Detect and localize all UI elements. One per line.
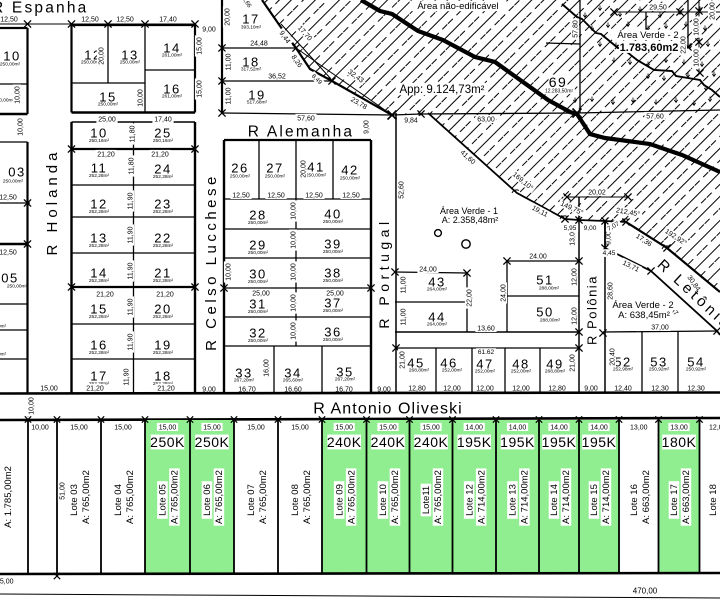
svg-text:10,00: 10,00: [31, 424, 49, 431]
svg-text:11,90: 11,90: [127, 226, 134, 243]
svg-text:250,00m²: 250,00m²: [323, 308, 344, 314]
svg-text:A: 714,00m2: A: 714,00m2: [520, 470, 531, 524]
svg-text:13,00: 13,00: [630, 424, 648, 431]
svg-text:10,00: 10,00: [225, 263, 232, 281]
svg-text:A: 765,00m2: A: 765,00m2: [170, 470, 181, 524]
svg-text:180K: 180K: [662, 434, 697, 450]
svg-text:252,28m²: 252,28m²: [89, 278, 110, 284]
svg-text:05: 05: [1, 270, 18, 285]
svg-text:42: 42: [341, 162, 358, 177]
svg-text:250,00m²: 250,00m²: [265, 174, 286, 180]
svg-text:Lote 15: Lote 15: [589, 484, 600, 516]
svg-text:393,10m²: 393,10m²: [241, 25, 262, 31]
svg-text:03: 03: [8, 164, 25, 179]
svg-text:195K: 195K: [500, 434, 535, 450]
svg-text:15,00: 15,00: [159, 424, 177, 431]
svg-text:R Espanha: R Espanha: [0, 0, 89, 16]
svg-text:57,80: 57,80: [572, 20, 579, 38]
svg-text:10,00: 10,00: [290, 263, 297, 281]
svg-text:250,00m²: 250,00m²: [248, 279, 269, 285]
svg-text:11,90: 11,90: [127, 298, 134, 315]
svg-text:20,00: 20,00: [224, 8, 231, 26]
svg-text:12,50: 12,50: [305, 192, 323, 199]
svg-text:20,00: 20,00: [709, 2, 716, 20]
svg-text:11,00: 11,00: [225, 87, 232, 104]
svg-text:14,00: 14,00: [465, 424, 483, 431]
svg-text:12,00: 12,00: [512, 385, 530, 392]
svg-text:252,28m²: 252,28m²: [153, 314, 174, 320]
svg-text:25,00: 25,00: [326, 290, 344, 297]
svg-text:9,00: 9,00: [584, 225, 597, 232]
svg-text:A: 765,00m2: A: 765,00m2: [302, 470, 313, 524]
svg-text:261,00m²: 261,00m²: [162, 53, 183, 59]
svg-text:Área não-edificável: Área não-edificável: [417, 1, 498, 12]
svg-text:37,00: 37,00: [651, 324, 669, 331]
svg-text:10,00: 10,00: [290, 231, 297, 249]
svg-text:69: 69: [549, 74, 568, 90]
svg-text:15,00: 15,00: [422, 424, 440, 431]
svg-text:4,45: 4,45: [603, 250, 616, 257]
svg-text:15,00: 15,00: [196, 80, 203, 98]
svg-text:250,92m²: 250,92m²: [649, 367, 670, 373]
svg-text:24,00: 24,00: [419, 266, 437, 273]
svg-text:21,00: 21,00: [569, 354, 576, 372]
svg-text:252,28m²: 252,28m²: [153, 174, 174, 180]
svg-text:0m²: 0m²: [0, 352, 7, 358]
svg-text:A: 765,00m2: A: 765,00m2: [214, 470, 225, 524]
svg-text:15,00: 15,00: [0, 578, 14, 585]
svg-text:13,60: 13,60: [477, 325, 495, 332]
svg-text:15,00: 15,00: [70, 424, 88, 431]
svg-text:21,20: 21,20: [96, 291, 114, 298]
svg-text:10: 10: [3, 48, 20, 63]
svg-text:250,16m²: 250,16m²: [153, 138, 174, 144]
svg-text:268,80m²: 268,80m²: [545, 369, 566, 375]
svg-text:267,20m²: 267,20m²: [234, 378, 255, 384]
svg-text:250,00m²: 250,00m²: [230, 174, 251, 180]
svg-text:A: 765,00m2: A: 765,00m2: [433, 470, 444, 524]
svg-text:15,00: 15,00: [196, 37, 203, 55]
svg-text:250,00m²: 250,00m²: [0, 62, 21, 68]
svg-text:A: 765,00m2: A: 765,00m2: [125, 470, 136, 524]
svg-text:25,00: 25,00: [252, 290, 270, 297]
svg-text:252,28m²: 252,28m²: [89, 209, 110, 215]
svg-text:A: 765,00m2: A: 765,00m2: [390, 470, 401, 524]
svg-text:20,40: 20,40: [609, 348, 616, 366]
svg-text:268,80m²: 268,80m²: [409, 368, 430, 374]
svg-text:Lote 18: Lote 18: [708, 484, 719, 516]
svg-text:24,48: 24,48: [250, 40, 268, 47]
svg-text:Lote 04: Lote 04: [113, 484, 124, 516]
svg-text:61.62: 61.62: [478, 349, 495, 356]
svg-text:15,00: 15,00: [335, 424, 353, 431]
svg-text:R Polônia: R Polônia: [584, 275, 599, 345]
svg-text:52,60: 52,60: [398, 181, 405, 199]
svg-text:12,00: 12,00: [443, 385, 461, 392]
svg-text:288,00m²: 288,00m²: [539, 286, 560, 292]
svg-text:250,00m²: 250,00m²: [248, 338, 269, 344]
svg-text:36,52: 36,52: [268, 73, 286, 80]
svg-text:0m²: 0m²: [0, 324, 7, 330]
svg-text:15,00: 15,00: [40, 385, 58, 392]
svg-text:11,00: 11,00: [400, 308, 407, 325]
svg-text:250,00m²: 250,00m²: [98, 102, 119, 108]
svg-text:14,00: 14,00: [550, 424, 568, 431]
svg-text:240K: 240K: [371, 434, 406, 450]
svg-text:252,28m²: 252,28m²: [153, 278, 174, 284]
svg-text:250,16m²: 250,16m²: [89, 138, 110, 144]
svg-text:250,00m²: 250,00m²: [7, 284, 28, 290]
svg-text:264,00m²: 264,00m²: [427, 322, 448, 328]
svg-text:195K: 195K: [582, 434, 617, 450]
svg-text:41: 41: [307, 159, 324, 174]
svg-text:252,00m²: 252,00m²: [511, 369, 532, 375]
svg-text:12,50: 12,50: [342, 192, 360, 199]
svg-text:1.783,60m2: 1.783,60m2: [620, 42, 679, 54]
svg-text:16,00: 16,00: [263, 359, 270, 377]
svg-text:252,28m²: 252,28m²: [153, 209, 174, 215]
svg-text:12.283,50m²: 12.283,50m²: [545, 89, 573, 95]
svg-text:R Antonio Oliveski: R Antonio Oliveski: [313, 400, 463, 417]
svg-text:11,90: 11,90: [123, 368, 130, 385]
svg-text:A: 714,00m2: A: 714,00m2: [476, 470, 487, 524]
svg-text:26: 26: [231, 160, 248, 175]
svg-text:20,02: 20,02: [588, 189, 606, 196]
svg-text:21,20: 21,20: [157, 385, 175, 392]
svg-text:252,28m²: 252,28m²: [89, 243, 110, 249]
svg-text:250,00m²: 250,00m²: [323, 249, 344, 255]
svg-text:10,00: 10,00: [693, 49, 700, 67]
svg-text:20,00: 20,00: [300, 160, 307, 178]
svg-text:20,00: 20,00: [98, 47, 105, 65]
svg-text:A: 2.358,48m²: A: 2.358,48m²: [442, 215, 499, 225]
svg-text:12,50: 12,50: [0, 194, 17, 201]
svg-text:9,00: 9,00: [202, 26, 216, 33]
svg-text:250,00m²: 250,00m²: [3, 179, 24, 185]
svg-text:252,28m²: 252,28m²: [89, 350, 110, 356]
svg-text:R Celso Lucchese: R Celso Lucchese: [203, 173, 220, 351]
svg-text:A: 1.785,00m2: A: 1.785,00m2: [3, 466, 14, 528]
svg-text:21,20: 21,20: [97, 151, 115, 158]
svg-text:252,00m²: 252,00m²: [442, 368, 463, 374]
svg-text:9,84: 9,84: [404, 117, 418, 124]
svg-text:11,90: 11,90: [127, 262, 134, 279]
svg-text:11,90: 11,90: [127, 192, 134, 209]
svg-text:11,80: 11,80: [129, 125, 136, 142]
svg-text:250,00m²: 250,00m²: [248, 309, 269, 315]
svg-text:12,50: 12,50: [81, 16, 99, 23]
svg-text:252,28m²: 252,28m²: [153, 350, 174, 356]
svg-text:11,80: 11,80: [128, 157, 135, 174]
svg-text:Lote 03: Lote 03: [69, 484, 80, 516]
svg-text:288,00m²: 288,00m²: [540, 318, 561, 324]
svg-text:Lote11: Lote11: [421, 486, 432, 514]
svg-text:10,00: 10,00: [28, 397, 35, 415]
svg-text:App: 9.124,73m²: App: 9.124,73m²: [399, 84, 484, 96]
svg-text:Lote 14: Lote 14: [549, 484, 560, 516]
svg-text:A: 663,00m2: A: 663,00m2: [681, 470, 692, 524]
svg-text:24.00: 24.00: [529, 253, 547, 260]
svg-text:252,00m²: 252,00m²: [475, 369, 496, 375]
svg-text:A: 663,00m2: A: 663,00m2: [641, 470, 652, 524]
svg-text:Lote 10: Lote 10: [378, 484, 389, 516]
svg-text:15,00: 15,00: [291, 424, 309, 431]
svg-text:13,00: 13,00: [670, 424, 688, 431]
svg-text:A: 714,00m2: A: 714,00m2: [561, 470, 572, 524]
svg-text:17,40: 17,40: [154, 116, 172, 123]
svg-text:252,28m²: 252,28m²: [89, 314, 110, 320]
svg-text:240K: 240K: [327, 434, 362, 450]
svg-text:A: 638,45m²: A: 638,45m²: [618, 310, 670, 321]
svg-text:Área Verde - 2: Área Verde - 2: [617, 30, 678, 41]
svg-text:Lote 08: Lote 08: [290, 484, 301, 516]
svg-text:57,60: 57,60: [646, 113, 664, 120]
svg-text:12,00: 12,00: [709, 424, 720, 431]
svg-text:50: 50: [536, 304, 553, 319]
svg-text:250,00m²: 250,00m²: [323, 337, 344, 343]
svg-text:R Holanda: R Holanda: [44, 149, 61, 256]
svg-text:12,00: 12,00: [571, 268, 578, 286]
svg-text:250,00m²: 250,00m²: [120, 60, 141, 66]
svg-text:51: 51: [536, 272, 553, 287]
svg-text:51,00: 51,00: [59, 482, 66, 500]
svg-text:10,00: 10,00: [17, 118, 24, 136]
svg-text:250,00m²: 250,00m²: [248, 220, 269, 226]
svg-text:250,00m²: 250,00m²: [248, 250, 269, 256]
svg-text:9,00: 9,00: [363, 120, 370, 134]
svg-text:12,80: 12,80: [408, 385, 426, 392]
svg-text:10,00: 10,00: [290, 294, 297, 312]
svg-text:12,50: 12,50: [232, 192, 250, 199]
svg-text:195K: 195K: [542, 434, 577, 450]
svg-text:63,00: 63,00: [477, 116, 495, 123]
svg-text:12,00: 12,00: [476, 385, 494, 392]
svg-text:250,00m²: 250,00m²: [306, 173, 327, 179]
svg-text:Lote 07: Lote 07: [246, 484, 257, 516]
svg-text:265,60m²: 265,60m²: [283, 378, 304, 384]
svg-text:10,00: 10,00: [290, 202, 297, 220]
svg-text:17,40: 17,40: [159, 16, 177, 23]
svg-text:250,00m²: 250,00m²: [323, 278, 344, 284]
svg-text:12,80: 12,80: [548, 385, 566, 392]
svg-text:15,00: 15,00: [247, 424, 265, 431]
svg-text:240K: 240K: [414, 434, 449, 450]
svg-text:A: 765,00m2: A: 765,00m2: [346, 470, 357, 524]
svg-text:57,60: 57,60: [297, 115, 315, 122]
svg-text:264,00m²: 264,00m²: [427, 287, 448, 293]
svg-text:28,60: 28,60: [607, 282, 614, 300]
svg-text:10,00: 10,00: [137, 89, 144, 107]
svg-text:15,00: 15,00: [114, 424, 132, 431]
svg-text:A: 765,00m2: A: 765,00m2: [258, 470, 269, 524]
svg-text:252,28m²: 252,28m²: [89, 173, 110, 179]
svg-text:250,00m²: 250,00m²: [323, 219, 344, 225]
svg-text:R Alemanha: R Alemanha: [248, 123, 354, 140]
svg-text:14,00: 14,00: [509, 424, 527, 431]
svg-text:22,00: 22,00: [466, 289, 473, 307]
svg-text:R Portugal: R Portugal: [376, 217, 392, 328]
svg-text:A: 765,00m2: A: 765,00m2: [81, 470, 92, 524]
svg-text:11,90: 11,90: [127, 333, 134, 350]
svg-text:5,95: 5,95: [564, 225, 577, 232]
svg-text:12,50: 12,50: [0, 249, 17, 256]
svg-text:Lote 13: Lote 13: [508, 484, 519, 516]
svg-text:250,00m²: 250,00m²: [0, 98, 15, 104]
svg-text:12,50: 12,50: [267, 192, 285, 199]
svg-text:21,00: 21,00: [399, 351, 406, 369]
svg-text:Lote 17: Lote 17: [669, 484, 680, 516]
svg-text:252,28m²: 252,28m²: [153, 243, 174, 249]
svg-text:12,50: 12,50: [0, 16, 18, 23]
svg-text:A: 714,00m2: A: 714,00m2: [601, 470, 612, 524]
svg-text:11,00: 11,00: [400, 276, 407, 293]
svg-text:250,00m²: 250,00m²: [340, 176, 361, 182]
svg-text:14,00: 14,00: [590, 424, 608, 431]
svg-text:Lote 06: Lote 06: [202, 484, 213, 516]
svg-text:Lote 12: Lote 12: [464, 484, 475, 516]
svg-text:17: 17: [242, 11, 259, 26]
svg-text:Lote 05: Lote 05: [158, 484, 169, 516]
svg-text:25,00: 25,00: [98, 116, 116, 123]
svg-text:195K: 195K: [457, 434, 492, 450]
svg-text:11,00: 11,00: [225, 53, 232, 70]
svg-text:10,00: 10,00: [290, 322, 297, 340]
svg-text:24,00: 24,00: [500, 284, 507, 302]
svg-text:517,68m²: 517,68m²: [247, 100, 268, 106]
svg-text:29,50: 29,50: [649, 4, 667, 11]
svg-text:250K: 250K: [150, 434, 185, 450]
svg-text:15,00: 15,00: [379, 424, 397, 431]
svg-text:21,20: 21,20: [86, 385, 104, 392]
svg-text:27: 27: [266, 160, 283, 175]
svg-text:470,00: 470,00: [633, 587, 658, 596]
svg-text:Lote 09: Lote 09: [334, 484, 345, 516]
svg-text:15,00: 15,00: [203, 424, 221, 431]
svg-text:317,52m²: 317,52m²: [241, 67, 262, 73]
svg-text:250,92m²: 250,92m²: [686, 367, 707, 373]
svg-text:261,00m²: 261,00m²: [162, 94, 183, 100]
svg-text:10,00: 10,00: [693, 18, 700, 36]
svg-text:9,00: 9,00: [584, 385, 598, 392]
svg-text:Lote 16: Lote 16: [629, 484, 640, 516]
svg-text:21,20: 21,20: [156, 291, 174, 298]
svg-text:12,00: 12,00: [571, 307, 578, 325]
svg-text:250K: 250K: [195, 434, 230, 450]
svg-text:267,20m²: 267,20m²: [335, 377, 356, 383]
svg-text:21,20: 21,20: [151, 151, 169, 158]
svg-text:22,00: 22,00: [680, 36, 687, 54]
svg-text:12,50: 12,50: [116, 16, 134, 23]
svg-text:10,00: 10,00: [14, 86, 21, 104]
